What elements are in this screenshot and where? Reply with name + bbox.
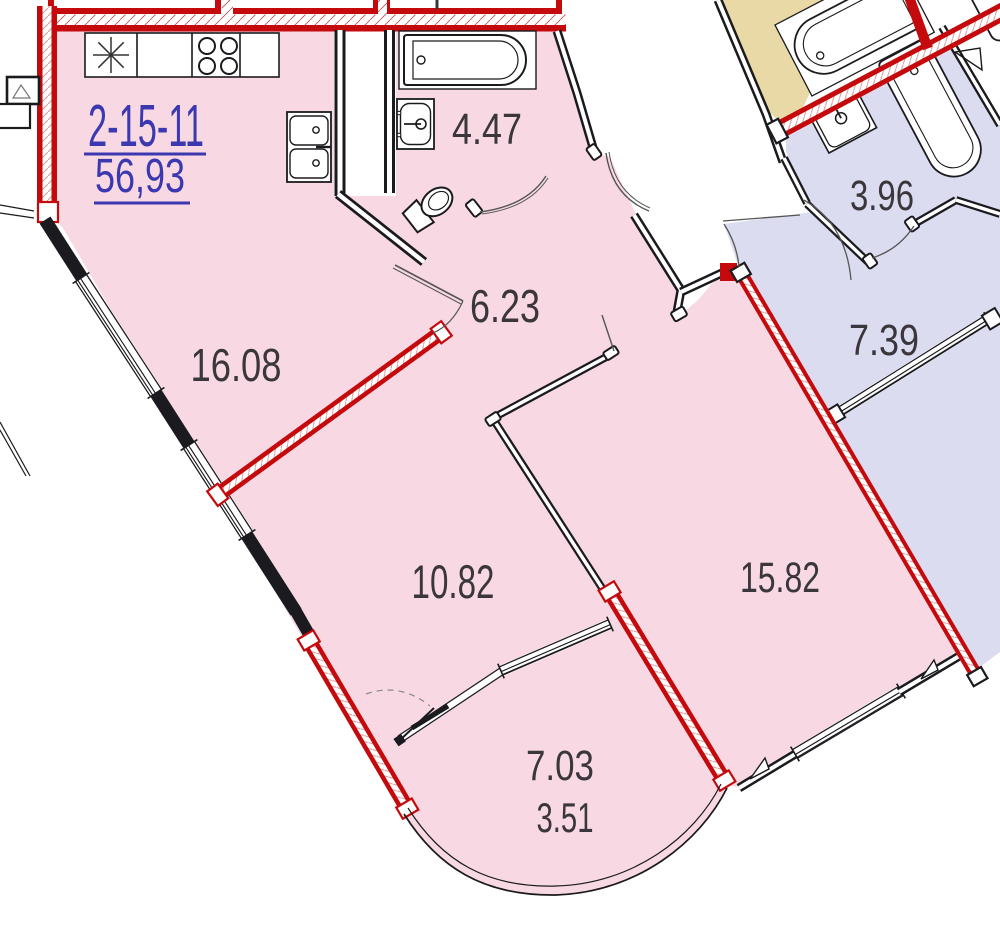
svg-text:3.96: 3.96 (850, 172, 914, 220)
svg-text:7.03: 7.03 (526, 742, 594, 790)
svg-text:3.51: 3.51 (537, 794, 594, 841)
svg-text:56,93: 56,93 (95, 150, 185, 203)
svg-text:15.82: 15.82 (740, 554, 820, 602)
svg-text:16.08: 16.08 (191, 339, 282, 391)
svg-text:10.82: 10.82 (412, 555, 495, 608)
svg-text:4.47: 4.47 (452, 105, 522, 154)
svg-text:7.39: 7.39 (849, 316, 919, 365)
svg-text:6.23: 6.23 (470, 280, 540, 332)
